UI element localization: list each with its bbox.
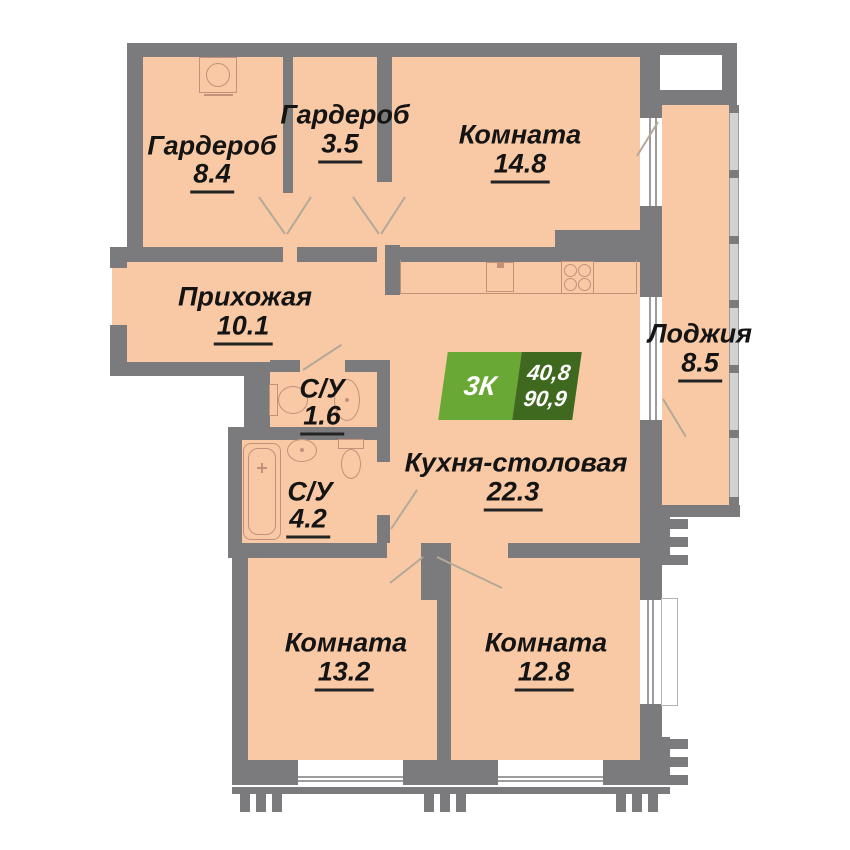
stove-burner-icon xyxy=(564,264,577,277)
wall-band-thick xyxy=(555,230,648,262)
glazing-mullion xyxy=(729,497,739,505)
kitchen-counter xyxy=(400,260,637,294)
shaft-opening xyxy=(660,55,722,90)
room-area-garderob-2: 3.5 xyxy=(318,129,362,164)
badge-total-area: 90,9 xyxy=(522,386,568,412)
comb-tooth xyxy=(256,794,266,812)
room-label-garderob-1: Гардероб xyxy=(147,131,276,162)
wall-right-a xyxy=(640,105,662,118)
room-label-lodzhiya: Лоджия xyxy=(648,319,752,350)
wall-kitchen-bottom-a xyxy=(228,543,387,558)
wall-kitchen-bottom-b xyxy=(508,543,648,558)
window-frame xyxy=(652,600,654,704)
glazing-mullion xyxy=(729,300,739,308)
glazing-mullion xyxy=(729,365,739,373)
wall-su2-right-a xyxy=(377,440,390,462)
stove-burner-icon xyxy=(564,278,577,291)
comb-tooth xyxy=(424,794,434,812)
comb-tooth xyxy=(670,555,688,565)
comb-tooth xyxy=(670,519,688,529)
room-area-kuhnya: 22.3 xyxy=(484,477,543,512)
window-frame xyxy=(655,297,657,420)
glazing-mullion xyxy=(729,170,739,178)
badge-rooms-label: 3К xyxy=(438,352,522,420)
window-kitchen-loggia xyxy=(645,297,661,420)
toilet-tank-icon xyxy=(269,384,278,416)
wall-left-upper xyxy=(127,43,143,247)
wall-su2-left xyxy=(228,427,242,553)
window-room128-east xyxy=(640,600,661,704)
room-label-komnata-1: Комната xyxy=(459,120,581,151)
washing-machine-drum-icon xyxy=(206,63,230,87)
room-area-komnata-3: 12.8 xyxy=(515,657,574,692)
wall-hall-bottom xyxy=(110,362,258,376)
sink-drain-dot xyxy=(300,448,304,452)
wall-loggia-bottom xyxy=(640,505,740,517)
room-label-kuhnya: Кухня-столовая xyxy=(405,448,628,479)
wall-bottom-a xyxy=(232,760,298,785)
glazing-mullion xyxy=(729,236,739,244)
wall-su1-top-a xyxy=(270,360,300,372)
comb-tooth xyxy=(670,537,688,547)
room-label-komnata-2: Комната xyxy=(285,628,407,659)
comb-strip-right-1 xyxy=(662,517,670,565)
wall-right-d xyxy=(640,704,662,760)
wall-kitchen-stub xyxy=(385,245,400,295)
floor-plan: Гардероб 8.4 Гардероб 3.5 Комната 14.8 П… xyxy=(0,0,850,850)
stove-burner-icon xyxy=(578,264,591,277)
window-frame xyxy=(647,600,649,704)
comb-tooth xyxy=(670,757,688,767)
comb-strip-right-2 xyxy=(662,737,670,785)
room-area-komnata-2: 13.2 xyxy=(315,657,374,692)
comb-tooth xyxy=(440,794,450,812)
wall-partition xyxy=(437,558,451,760)
comb-tooth xyxy=(632,794,642,812)
comb-tooth xyxy=(456,794,466,812)
comb-tooth xyxy=(240,794,250,812)
wall-su2-right-b xyxy=(377,515,390,543)
room-area-su-2: 4.2 xyxy=(286,504,330,539)
badge-areas: 40,8 90,9 xyxy=(512,352,582,420)
room-area-komnata-1: 14.8 xyxy=(491,149,550,184)
room-label-komnata-3: Комната xyxy=(485,628,607,659)
glazing-mullion xyxy=(729,105,739,113)
badge-living-area: 40,8 xyxy=(526,360,572,386)
bathtub-drain-cross xyxy=(261,463,263,473)
window-frame xyxy=(298,776,403,778)
window-frame xyxy=(498,780,603,782)
floor-entrance-nub xyxy=(112,268,127,325)
wall-bottom-b xyxy=(403,760,498,785)
room-area-su-1: 1.6 xyxy=(300,401,344,436)
glazing-mullion xyxy=(729,430,739,438)
wall-left-mid-a xyxy=(110,247,127,268)
sink-drain-dot xyxy=(345,398,349,402)
washing-machine-base xyxy=(204,94,233,96)
window-frame xyxy=(649,297,651,420)
wall-band-b xyxy=(297,247,377,262)
kitchen-tap-icon xyxy=(497,262,504,268)
room-area-prihozhaya: 10.1 xyxy=(214,311,273,346)
comb-tooth xyxy=(670,775,688,785)
toilet-tank-icon xyxy=(338,439,364,449)
window-frame xyxy=(298,780,403,782)
window-frame xyxy=(655,118,657,206)
window-sill-east xyxy=(661,598,678,706)
room-area-garderob-1: 8.4 xyxy=(190,159,234,194)
wall-right-b xyxy=(640,206,662,297)
room-area-lodzhiya: 8.5 xyxy=(678,348,722,383)
stove-burner-icon xyxy=(578,278,591,291)
comb-tooth xyxy=(616,794,626,812)
bathtub-inner-icon xyxy=(248,448,276,535)
wall-band-a xyxy=(127,247,283,262)
apartment-badge: 3К 40,8 90,9 xyxy=(438,352,582,420)
floor-loggia xyxy=(662,105,729,505)
window-frame xyxy=(498,776,603,778)
wall-bottom-c xyxy=(603,760,662,785)
comb-strip-bottom xyxy=(232,787,670,794)
comb-tooth xyxy=(272,794,282,812)
toilet-bowl-icon xyxy=(341,449,361,479)
room-label-garderob-2: Гардероб xyxy=(280,100,409,131)
room-label-prihozhaya: Прихожая xyxy=(178,282,312,313)
comb-tooth xyxy=(670,739,688,749)
comb-tooth xyxy=(648,794,658,812)
wall-room132-left xyxy=(232,553,248,785)
